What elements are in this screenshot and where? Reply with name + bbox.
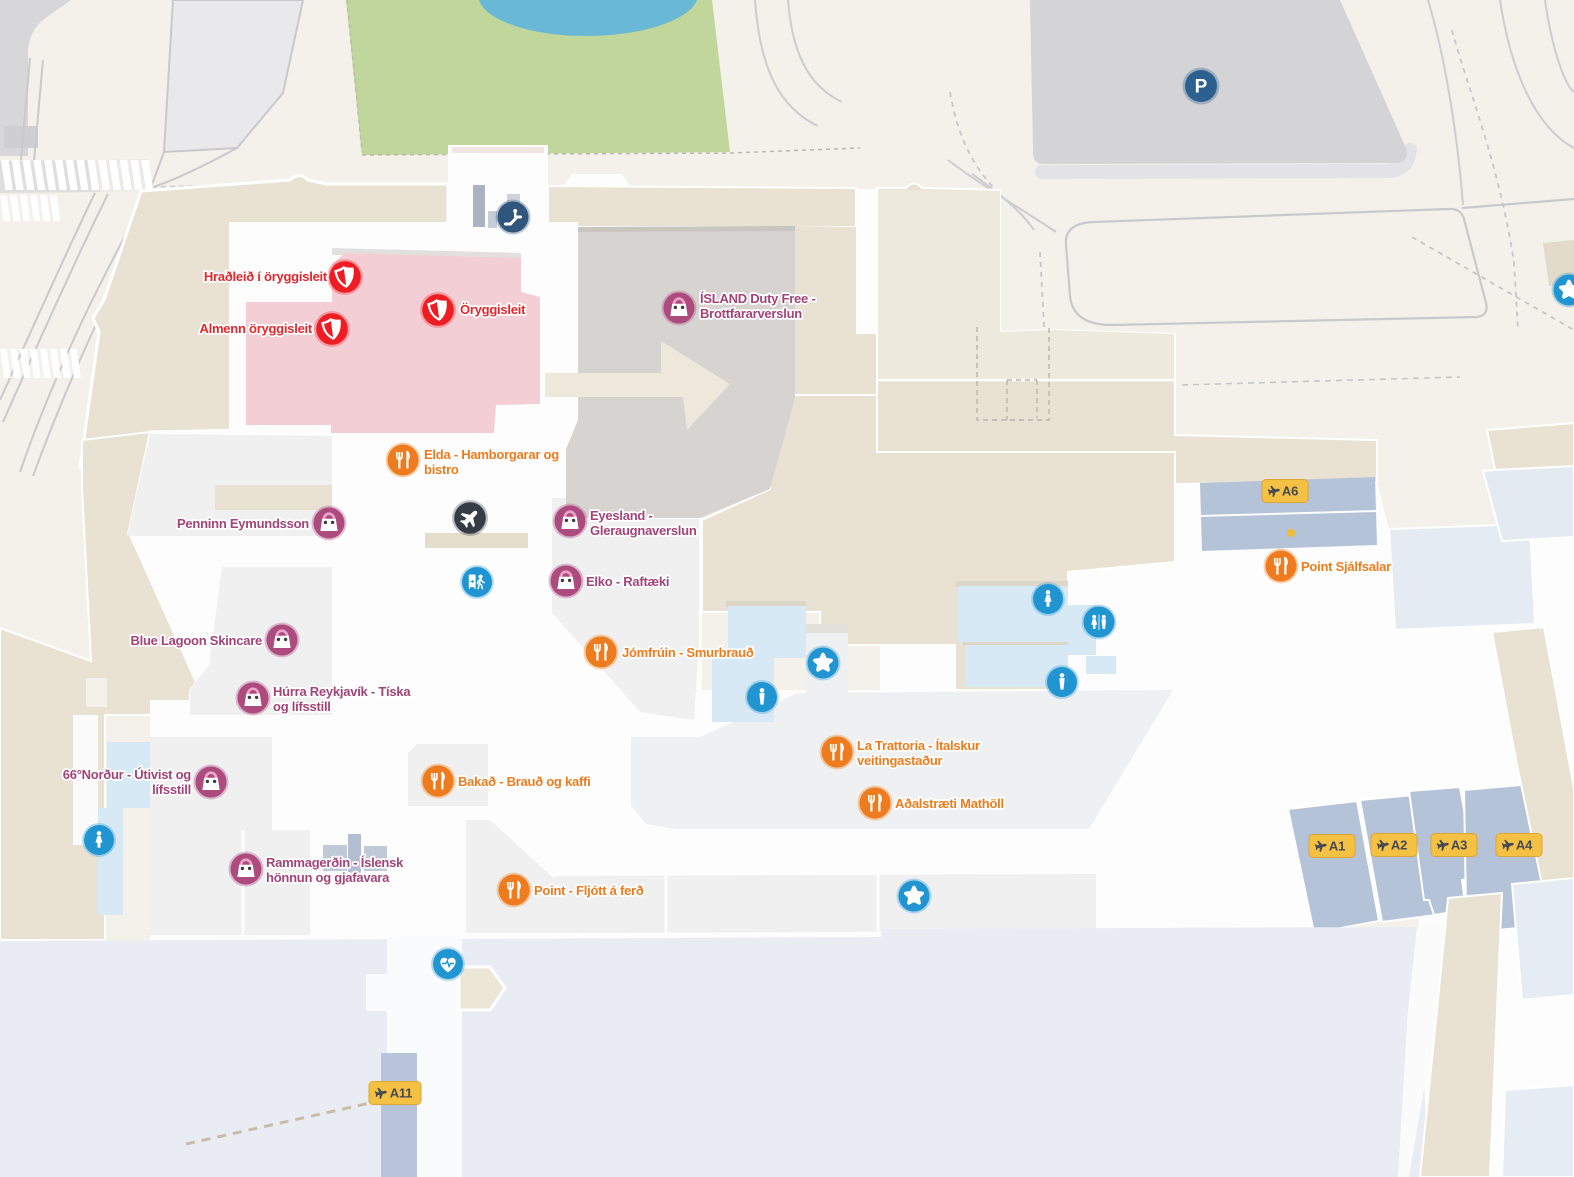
svg-text:Gleraugnaverslun: Gleraugnaverslun — [590, 523, 697, 538]
svg-text:Point Sjálfsalar: Point Sjálfsalar — [1301, 559, 1391, 574]
svg-text:Point - Fljótt á ferð: Point - Fljótt á ferð — [534, 883, 644, 898]
svg-text:Almenn öryggisleit: Almenn öryggisleit — [199, 321, 312, 336]
svg-text:veitingastaður: veitingastaður — [857, 753, 943, 768]
svg-text:A1: A1 — [1329, 839, 1345, 854]
svg-text:Aðalstræti Mathöll: Aðalstræti Mathöll — [895, 796, 1004, 811]
svg-text:Elda - Hamborgarar og: Elda - Hamborgarar og — [424, 447, 559, 462]
svg-text:Öryggisleit: Öryggisleit — [460, 302, 526, 317]
svg-text:A6: A6 — [1282, 484, 1298, 499]
svg-text:A11: A11 — [390, 1086, 413, 1101]
svg-text:lífsstill: lífsstill — [152, 782, 191, 797]
svg-text:Blue Lagoon Skincare: Blue Lagoon Skincare — [130, 633, 262, 648]
svg-text:Penninn Eymundsson: Penninn Eymundsson — [177, 516, 309, 531]
svg-text:A3: A3 — [1451, 838, 1467, 853]
svg-text:Brottfararverslun: Brottfararverslun — [700, 306, 802, 321]
svg-text:A2: A2 — [1391, 838, 1407, 853]
svg-text:Jómfrúin - Smurbrauð: Jómfrúin - Smurbrauð — [622, 645, 754, 660]
svg-text:Bakað - Brauð og kaffi: Bakað - Brauð og kaffi — [458, 774, 590, 789]
svg-text:bistro: bistro — [424, 462, 459, 477]
svg-text:66°Norður - Útivist og: 66°Norður - Útivist og — [63, 767, 192, 782]
svg-text:Elko - Raftæki: Elko - Raftæki — [586, 574, 669, 589]
svg-text:Rammagerðin - Íslensk: Rammagerðin - Íslensk — [266, 855, 404, 870]
svg-text:A4: A4 — [1516, 838, 1533, 853]
svg-text:Hraðleið í öryggisleit: Hraðleið í öryggisleit — [204, 269, 328, 284]
svg-text:og lífsstill: og lífsstill — [273, 699, 331, 714]
svg-text:Húrra Reykjavík - Tíska: Húrra Reykjavík - Tíska — [273, 684, 411, 699]
svg-text:La Trattoria - Ítalskur: La Trattoria - Ítalskur — [857, 738, 980, 753]
svg-text:hönnun og gjafavara: hönnun og gjafavara — [266, 870, 390, 885]
svg-text:ÍSLAND Duty Free -: ÍSLAND Duty Free - — [700, 291, 815, 306]
svg-text:Eyesland -: Eyesland - — [590, 508, 653, 523]
